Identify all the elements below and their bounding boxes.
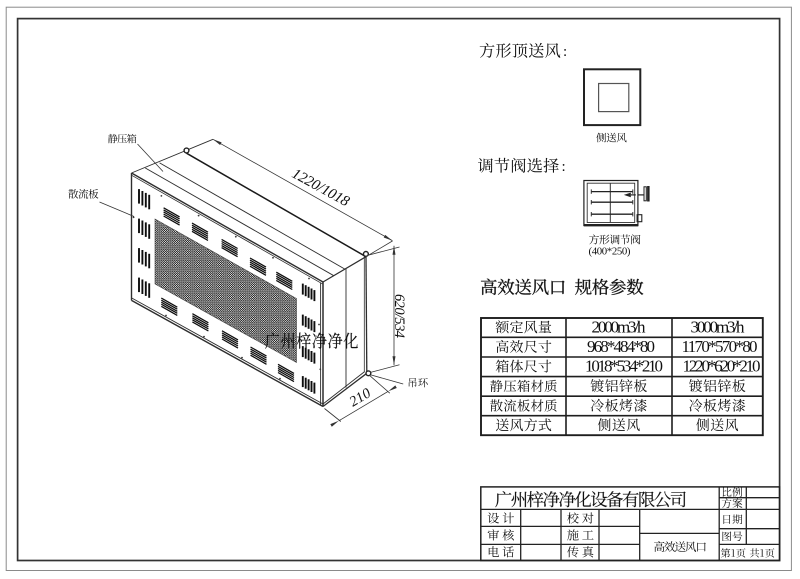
svg-text:1018*534*210: 1018*534*210 [585, 357, 663, 376]
svg-text:1220*620*210: 1220*620*210 [683, 357, 761, 376]
svg-text:2000m3/h: 2000m3/h [592, 317, 647, 336]
svg-text:3000m3/h: 3000m3/h [691, 317, 746, 336]
svg-text:968*484*80: 968*484*80 [587, 337, 655, 356]
svg-text:(400*250): (400*250) [589, 246, 631, 258]
svg-text:1170*570*80: 1170*570*80 [682, 337, 758, 356]
svg-text::: : [563, 44, 567, 60]
svg-text::: : [562, 159, 566, 175]
svg-text:620/534: 620/534 [391, 294, 407, 338]
